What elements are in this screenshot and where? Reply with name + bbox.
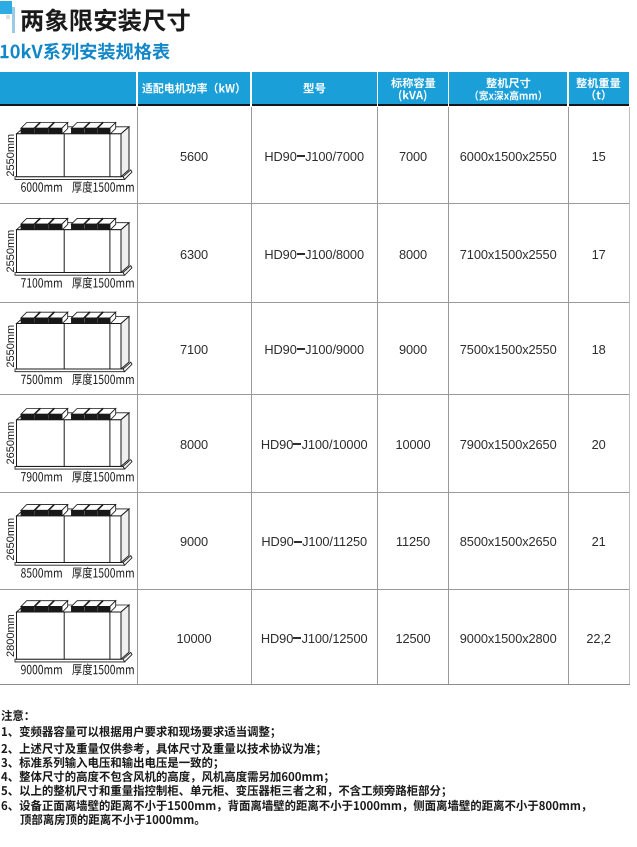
svg-text:2650mm: 2650mm bbox=[5, 421, 17, 464]
svg-text:2650mm: 2650mm bbox=[5, 517, 17, 560]
svg-text:2800mm: 2800mm bbox=[5, 614, 17, 657]
svg-text:2550mm: 2550mm bbox=[5, 230, 17, 273]
svg-text:2550mm: 2550mm bbox=[5, 325, 17, 368]
svg-text:2550mm: 2550mm bbox=[5, 133, 17, 176]
